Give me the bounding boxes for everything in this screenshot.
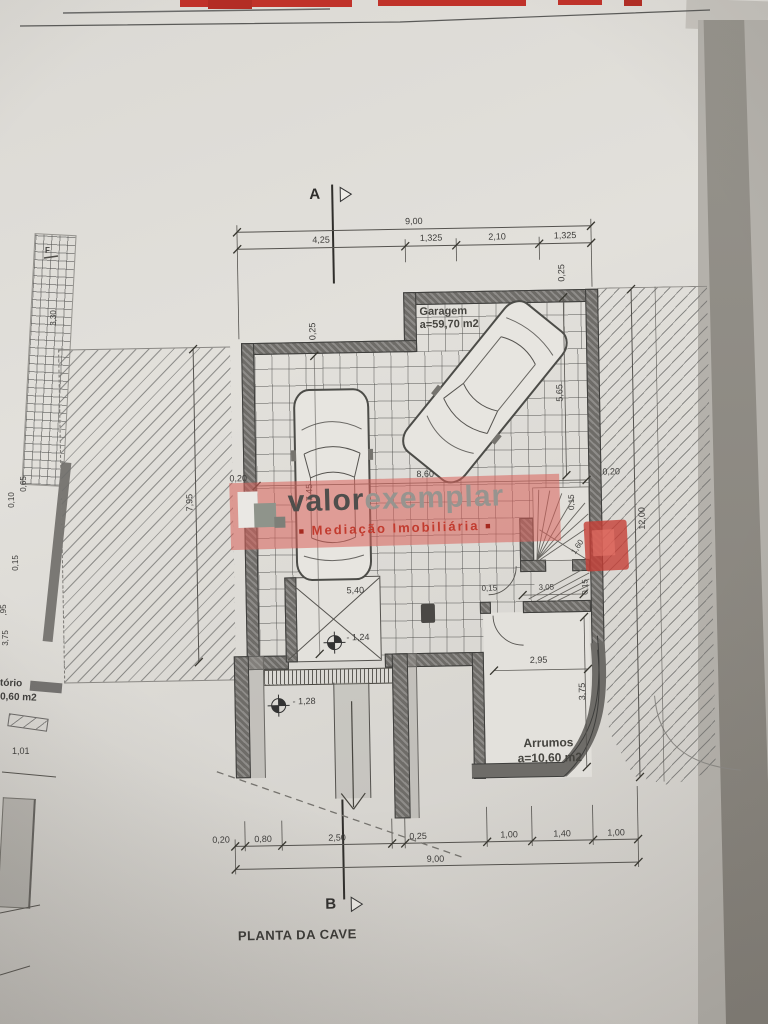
watermark-bullet: ■ [298, 526, 306, 536]
dim-label: 1,325 [420, 234, 443, 243]
floor-plan-photo: F 3,30 0,65 0,10 0,15 ,95 3,75 tório 0,6… [0, 0, 768, 1024]
dim-label: 0,25 [557, 253, 567, 293]
watermark-red-patch-inner [592, 529, 615, 556]
dim-label: 0,15 [481, 585, 497, 593]
level-label: - 1,28 [292, 697, 315, 706]
dim-label: 0,15 [568, 482, 577, 522]
dim-label: 5,40 [346, 586, 364, 595]
section-marker-label: B [325, 896, 336, 913]
dim-label: 1,00 [500, 830, 518, 839]
level-marker-upper [323, 631, 345, 653]
section-marker-label: A [309, 186, 320, 203]
dim-label: 1,00 [607, 828, 625, 837]
dim-label: 0,15 [581, 567, 590, 607]
dim-label: 9,00 [405, 217, 423, 226]
storage-name: Arrumos [523, 735, 573, 751]
dim-label: 4,25 [312, 236, 330, 245]
dim-label: 9,00 [427, 855, 445, 864]
watermark-brand-part2: exemplar [364, 479, 505, 516]
basement-plan: 9,00 4,25 1,325 2,10 1,325 A B Garagem a… [0, 0, 768, 1024]
dim-label: 3,05 [538, 584, 554, 592]
dim-label: 12,00 [637, 498, 647, 538]
watermark-red-patch [583, 519, 629, 571]
wall-storage-curved [469, 633, 741, 778]
watermark-tagline-text: Mediação Imobiliária [311, 518, 479, 538]
garage-area: a=59,70 m2 [420, 318, 479, 333]
plan-title: PLANTA DA CAVE [238, 926, 357, 943]
property-dashed-line [217, 767, 463, 861]
dim-label: 5,65 [555, 373, 565, 413]
dim-label: 1,40 [553, 829, 571, 838]
watermark-brand: valorexemplar [287, 481, 504, 517]
watermark-bullet: ■ [485, 521, 493, 531]
dim-label: 0,25 [308, 311, 318, 351]
dim-label: 2,10 [488, 232, 506, 241]
watermark-band: valorexemplar ■ Mediação Imobiliária ■ [229, 474, 561, 550]
dim-label: 7,95 [185, 483, 195, 523]
level-label: - 1,24 [346, 633, 369, 642]
dim-label: 0,20 [212, 836, 230, 845]
dim-label: 0,80 [254, 835, 272, 844]
dim-label: 3,75 [578, 671, 588, 711]
dim-label: 0,20 [602, 467, 620, 476]
level-marker-lower [267, 694, 289, 716]
dim-label: 2,95 [530, 656, 548, 665]
dim-label: 0,25 [409, 832, 427, 841]
watermark-brand-part1: valor [287, 483, 365, 518]
dim-label: 2,50 [328, 833, 346, 842]
ramp-arrow [340, 701, 366, 809]
storage-area: a=10,60 m2 [518, 750, 583, 766]
door-arcs [488, 566, 523, 646]
dim-label: 1,325 [554, 231, 577, 240]
section-line-A [332, 184, 353, 283]
